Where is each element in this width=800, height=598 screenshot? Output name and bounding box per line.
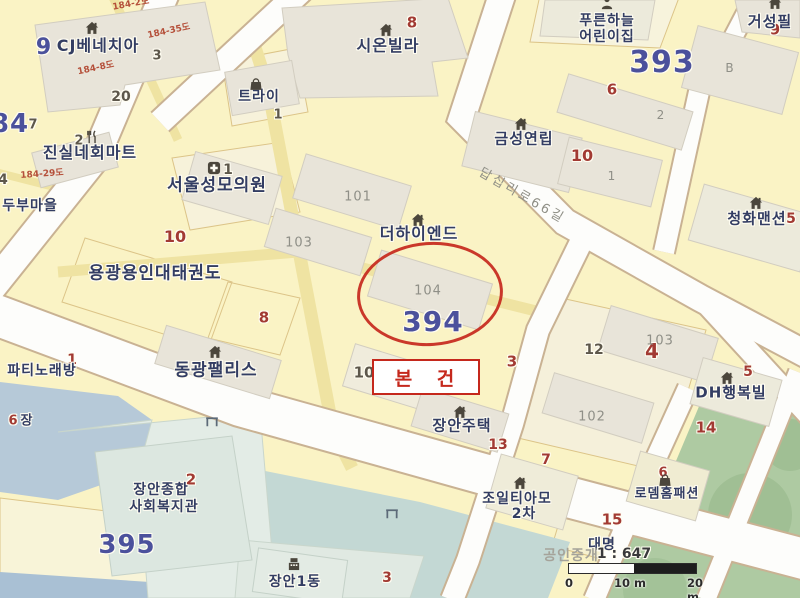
scale-tick-10: 10 m [614, 576, 646, 590]
scale-bar-segment-white [569, 564, 634, 573]
scale-bar-track [568, 563, 697, 574]
scale-tick-0: 0 [565, 576, 573, 590]
scale-bar: 0 10 m 20 m [568, 563, 697, 574]
map-viewport[interactable]: 8493933943958961051081623451413761533207… [0, 0, 800, 598]
scale-tick-20: 20 m [687, 576, 703, 598]
subject-property-box: 본 건 [372, 359, 480, 395]
scale-bar-segment-black [634, 564, 696, 573]
